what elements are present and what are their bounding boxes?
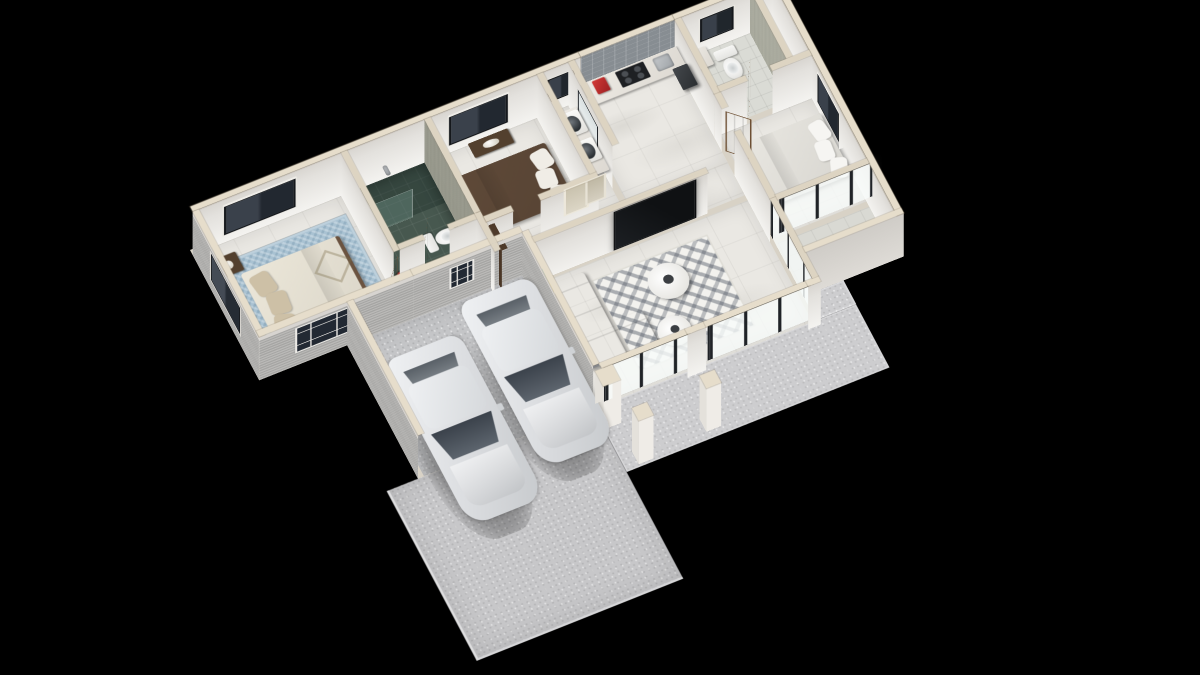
porch-column-2-face-front — [706, 383, 721, 432]
front-pier-face — [688, 327, 707, 378]
garage-back-wall-window-1 — [449, 258, 474, 289]
front-corner-stub-face — [809, 281, 822, 329]
back-wall-right-window-1 — [700, 6, 734, 42]
bed-bedroom1-pillow — [264, 289, 293, 316]
porch-column-1-face-front — [638, 415, 653, 464]
floor-plan-3d-render — [0, 0, 1200, 675]
